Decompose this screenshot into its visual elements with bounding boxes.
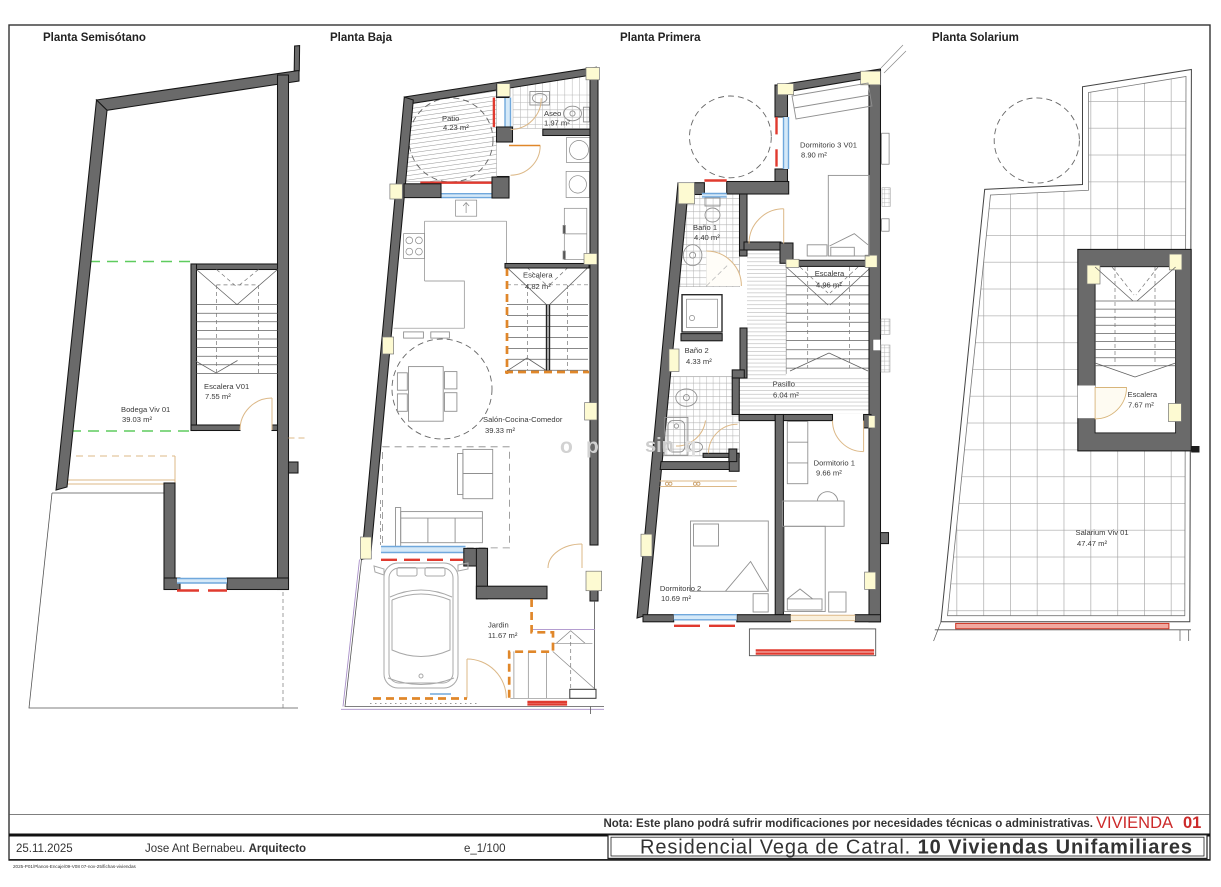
svg-text:4.82 m²: 4.82 m² (525, 282, 551, 291)
svg-text:7.55 m²: 7.55 m² (205, 392, 231, 401)
svg-text:Planta Primera: Planta Primera (620, 32, 701, 44)
svg-text:6.04 m²: 6.04 m² (773, 391, 799, 400)
svg-text:25.11.2025: 25.11.2025 (16, 843, 73, 855)
svg-text:47.47 m²: 47.47 m² (1077, 539, 1107, 548)
svg-text:7.67 m²: 7.67 m² (1128, 401, 1154, 410)
svg-text:8.90 m²: 8.90 m² (801, 151, 827, 160)
svg-text:4.96 m²: 4.96 m² (816, 281, 842, 290)
svg-text:o: o (560, 435, 573, 458)
svg-text:4.40 m²: 4.40 m² (694, 233, 720, 242)
svg-text:Patio: Patio (442, 114, 459, 123)
svg-text:1.97 m²: 1.97 m² (544, 119, 570, 128)
svg-text:Escalera: Escalera (1128, 390, 1158, 399)
svg-text:Bodega Viv 01: Bodega Viv 01 (121, 405, 170, 414)
svg-text:Baño 1: Baño 1 (693, 223, 717, 232)
svg-text:Planta Semisótano: Planta Semisótano (43, 32, 146, 44)
svg-text:Jose Ant Bernabeu. Arquitecto: Jose Ant Bernabeu. Arquitecto (145, 843, 306, 855)
svg-text:Pasillo: Pasillo (773, 380, 795, 389)
svg-text:Dormitorio 3 V01: Dormitorio 3 V01 (800, 141, 857, 150)
svg-text:2025-P01/Planos-Encaje/09-V08: 2025-P01/Planos-Encaje/09-V08 07-nov-25/… (13, 864, 137, 869)
svg-text:Dormitorio 2: Dormitorio 2 (660, 584, 701, 593)
svg-text:sin: sin (645, 435, 674, 457)
svg-text:Residencial Vega de Catral. 10: Residencial Vega de Catral. 10 Viviendas… (640, 837, 1193, 859)
svg-text:e_1/100: e_1/100 (464, 843, 506, 855)
svg-text:Planta Baja: Planta Baja (330, 32, 393, 44)
svg-text:q: q (684, 435, 696, 457)
svg-text:Salón-Cocina-Comedor: Salón-Cocina-Comedor (483, 415, 563, 424)
svg-text:9.66 m²: 9.66 m² (816, 469, 842, 478)
svg-text:Baño 2: Baño 2 (685, 346, 709, 355)
svg-text:p: p (586, 435, 599, 458)
svg-text:Dormitorio 1: Dormitorio 1 (814, 459, 855, 468)
svg-text:11.67 m²: 11.67 m² (488, 631, 518, 640)
svg-text:Aseo: Aseo (544, 109, 561, 118)
svg-text:39.03 m²: 39.03 m² (122, 415, 152, 424)
svg-text:Escalera: Escalera (523, 271, 553, 280)
svg-text:Planta Solarium: Planta Solarium (932, 32, 1019, 44)
svg-text:01: 01 (1183, 814, 1201, 832)
svg-text:Jardin: Jardin (488, 621, 509, 630)
svg-text:VIVIENDA: VIVIENDA (1096, 814, 1173, 832)
svg-text:Nota: Este plano podrá sufrir: Nota: Este plano podrá sufrir modificaci… (603, 818, 1093, 830)
svg-text:Escalera: Escalera (815, 269, 845, 278)
svg-text:4.23 m²: 4.23 m² (443, 123, 469, 132)
svg-text:10.69 m²: 10.69 m² (661, 594, 691, 603)
svg-text:4.33 m²: 4.33 m² (686, 357, 712, 366)
svg-text:Escalera V01: Escalera V01 (204, 382, 249, 391)
svg-text:Salarium Viv 01: Salarium Viv 01 (1076, 528, 1129, 537)
svg-text:39.33 m²: 39.33 m² (485, 426, 515, 435)
